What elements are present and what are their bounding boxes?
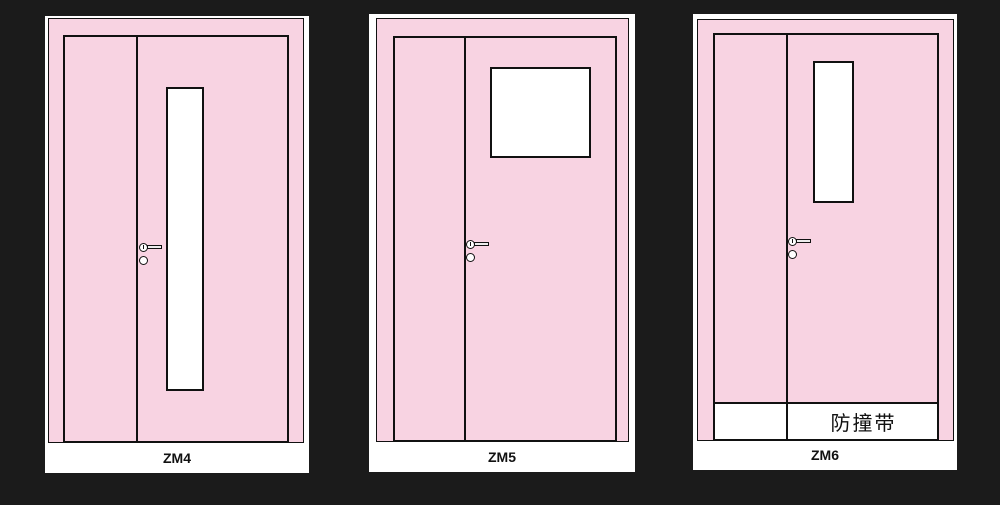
anti-collision-strip: 防撞带 <box>713 402 939 441</box>
door-leaf-split-line <box>136 35 138 443</box>
door-leaf-split-line <box>464 36 466 442</box>
door-handle <box>466 240 496 266</box>
door-label: ZM6 <box>693 440 957 470</box>
door-card-zm4: ZM4 <box>45 16 309 473</box>
door-label: ZM4 <box>45 443 309 473</box>
door-handle <box>788 237 818 263</box>
handle-knob-icon <box>466 240 475 249</box>
vision-panel-window <box>813 61 854 203</box>
handle-lever-icon <box>474 242 489 246</box>
door-handle <box>139 243 169 269</box>
vision-panel-window <box>490 67 591 158</box>
door-card-zm6: 防撞带 ZM6 <box>693 14 957 470</box>
lock-cylinder-icon <box>139 256 148 265</box>
anti-collision-strip-label: 防撞带 <box>788 404 939 439</box>
door-card-zm5: ZM5 <box>369 14 635 472</box>
door-label: ZM5 <box>369 442 635 472</box>
lock-cylinder-icon <box>466 253 475 262</box>
lock-cylinder-icon <box>788 250 797 259</box>
handle-lever-icon <box>147 245 162 249</box>
handle-lever-icon <box>796 239 811 243</box>
vision-panel-window <box>166 87 204 391</box>
handle-knob-icon <box>788 237 797 246</box>
handle-knob-icon <box>139 243 148 252</box>
